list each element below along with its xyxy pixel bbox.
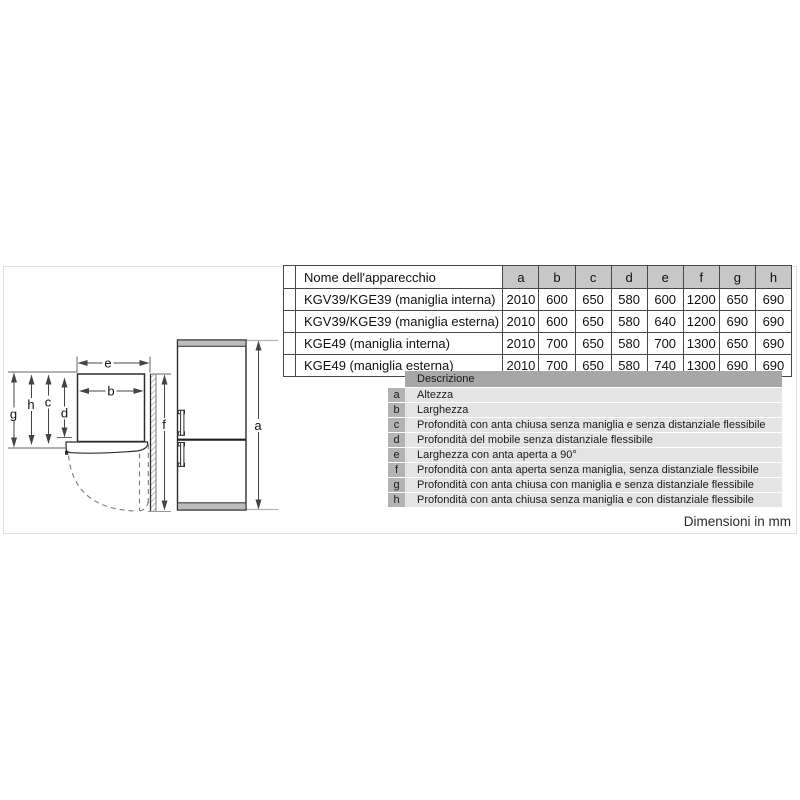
svg-text:h: h bbox=[27, 397, 34, 412]
legend-key: g bbox=[388, 478, 405, 492]
spec-cell: 2010 bbox=[503, 333, 539, 355]
label-f: f bbox=[159, 417, 170, 432]
spec-table: Nome dell'apparecchio a b c d e f g h KG… bbox=[283, 265, 792, 377]
spec-cell: 690 bbox=[755, 333, 791, 355]
spacer-cell bbox=[284, 333, 296, 355]
table-row: KGV39/KGE39 (maniglia esterna) 2010 600 … bbox=[284, 311, 792, 333]
door-open-bottom-curve bbox=[140, 502, 149, 512]
column-header: d bbox=[611, 266, 647, 289]
legend-header-spacer bbox=[388, 371, 405, 387]
legend-text: Profondità del mobile senza distanziale … bbox=[405, 433, 782, 447]
units-note: Dimensioni in mm bbox=[0, 514, 791, 529]
legend: Descrizione aAltezza bLarghezza cProfond… bbox=[388, 371, 782, 508]
legend-text: Altezza bbox=[405, 388, 782, 402]
column-header: f bbox=[683, 266, 719, 289]
label-a: a bbox=[253, 418, 264, 433]
legend-key: d bbox=[388, 433, 405, 447]
svg-text:e: e bbox=[104, 356, 111, 371]
spec-cell: 1300 bbox=[683, 333, 719, 355]
spec-cell: 650 bbox=[719, 333, 755, 355]
svg-text:d: d bbox=[61, 406, 68, 421]
legend-text: Profondità con anta chiusa senza manigli… bbox=[405, 493, 782, 507]
spec-cell: 2010 bbox=[503, 311, 539, 333]
spec-cell: 690 bbox=[719, 311, 755, 333]
spec-cell: 2010 bbox=[503, 289, 539, 311]
svg-text:b: b bbox=[107, 384, 114, 399]
spec-cell: 580 bbox=[611, 311, 647, 333]
legend-text: Profondità con anta aperta senza manigli… bbox=[405, 463, 782, 477]
legend-item: cProfondità con anta chiusa senza manigl… bbox=[388, 418, 782, 432]
spec-cell: 1200 bbox=[683, 289, 719, 311]
legend-text: Larghezza con anta aperta a 90° bbox=[405, 448, 782, 462]
spec-cell: 600 bbox=[539, 289, 575, 311]
door-corner-marker bbox=[65, 451, 68, 455]
spec-cell: 600 bbox=[539, 311, 575, 333]
label-h: h bbox=[26, 397, 37, 412]
legend-key: h bbox=[388, 493, 405, 507]
spec-cell: 690 bbox=[755, 289, 791, 311]
spacer-cell bbox=[284, 311, 296, 333]
table-header-row: Nome dell'apparecchio a b c d e f g h bbox=[284, 266, 792, 289]
row-label: KGE49 (maniglia interna) bbox=[296, 333, 503, 355]
label-g: g bbox=[8, 407, 19, 422]
row-label: KGV39/KGE39 (maniglia esterna) bbox=[296, 311, 503, 333]
fridge-top-cap bbox=[178, 340, 247, 346]
svg-text:f: f bbox=[162, 417, 166, 432]
table-row: KGE49 (maniglia interna) 2010 700 650 58… bbox=[284, 333, 792, 355]
spec-cell: 580 bbox=[611, 289, 647, 311]
label-b: b bbox=[106, 384, 117, 399]
column-header: c bbox=[575, 266, 611, 289]
spec-cell: 690 bbox=[755, 311, 791, 333]
legend-text: Profondità con anta chiusa senza manigli… bbox=[405, 418, 782, 432]
label-e: e bbox=[103, 356, 114, 371]
spacer-cell bbox=[284, 266, 296, 289]
legend-item: dProfondità del mobile senza distanziale… bbox=[388, 433, 782, 447]
legend-item: hProfondità con anta chiusa senza manigl… bbox=[388, 493, 782, 507]
label-c: c bbox=[43, 395, 54, 410]
spec-cell: 600 bbox=[647, 289, 683, 311]
legend-header-title: Descrizione bbox=[405, 371, 782, 387]
legend-key: a bbox=[388, 388, 405, 402]
legend-key: f bbox=[388, 463, 405, 477]
spec-cell: 700 bbox=[647, 333, 683, 355]
spec-cell: 650 bbox=[575, 333, 611, 355]
column-header: h bbox=[755, 266, 791, 289]
legend-item: eLarghezza con anta aperta a 90° bbox=[388, 448, 782, 462]
label-d: d bbox=[59, 406, 70, 421]
legend-key: b bbox=[388, 403, 405, 417]
table-row: KGV39/KGE39 (maniglia interna) 2010 600 … bbox=[284, 289, 792, 311]
legend-item: fProfondità con anta aperta senza manigl… bbox=[388, 463, 782, 477]
spec-cell: 650 bbox=[575, 311, 611, 333]
spec-cell: 640 bbox=[647, 311, 683, 333]
spec-cell: 650 bbox=[575, 289, 611, 311]
spec-cell: 700 bbox=[539, 333, 575, 355]
column-header: g bbox=[719, 266, 755, 289]
spec-cell: 650 bbox=[719, 289, 755, 311]
dimension-diagram: g h c d e b f a bbox=[0, 330, 300, 540]
legend-header-row: Descrizione bbox=[388, 371, 782, 387]
wall-hatch bbox=[151, 374, 157, 512]
spec-cell: 1200 bbox=[683, 311, 719, 333]
legend-item: bLarghezza bbox=[388, 403, 782, 417]
fridge-top-view bbox=[8, 357, 171, 512]
legend-key: e bbox=[388, 448, 405, 462]
page: g h c d e b f a Nome dell'apparecchio a … bbox=[0, 0, 800, 800]
legend-item: gProfondità con anta chiusa con maniglia… bbox=[388, 478, 782, 492]
legend-text: Profondità con anta chiusa con maniglia … bbox=[405, 478, 782, 492]
legend-text: Larghezza bbox=[405, 403, 782, 417]
spacer-cell bbox=[284, 355, 296, 377]
column-header: b bbox=[539, 266, 575, 289]
legend-item: aAltezza bbox=[388, 388, 782, 402]
column-header: e bbox=[647, 266, 683, 289]
spec-cell: 580 bbox=[611, 333, 647, 355]
fridge-front-outline bbox=[178, 340, 247, 510]
door-closed-outline bbox=[66, 442, 148, 453]
svg-text:c: c bbox=[45, 395, 52, 410]
legend-key: c bbox=[388, 418, 405, 432]
name-header-cell: Nome dell'apparecchio bbox=[296, 266, 503, 289]
door-swing-arc bbox=[69, 456, 139, 512]
svg-text:g: g bbox=[10, 407, 17, 422]
row-label: KGV39/KGE39 (maniglia interna) bbox=[296, 289, 503, 311]
fridge-bottom-cap bbox=[178, 503, 247, 510]
svg-text:a: a bbox=[254, 418, 262, 433]
column-header: a bbox=[503, 266, 539, 289]
spacer-cell bbox=[284, 289, 296, 311]
